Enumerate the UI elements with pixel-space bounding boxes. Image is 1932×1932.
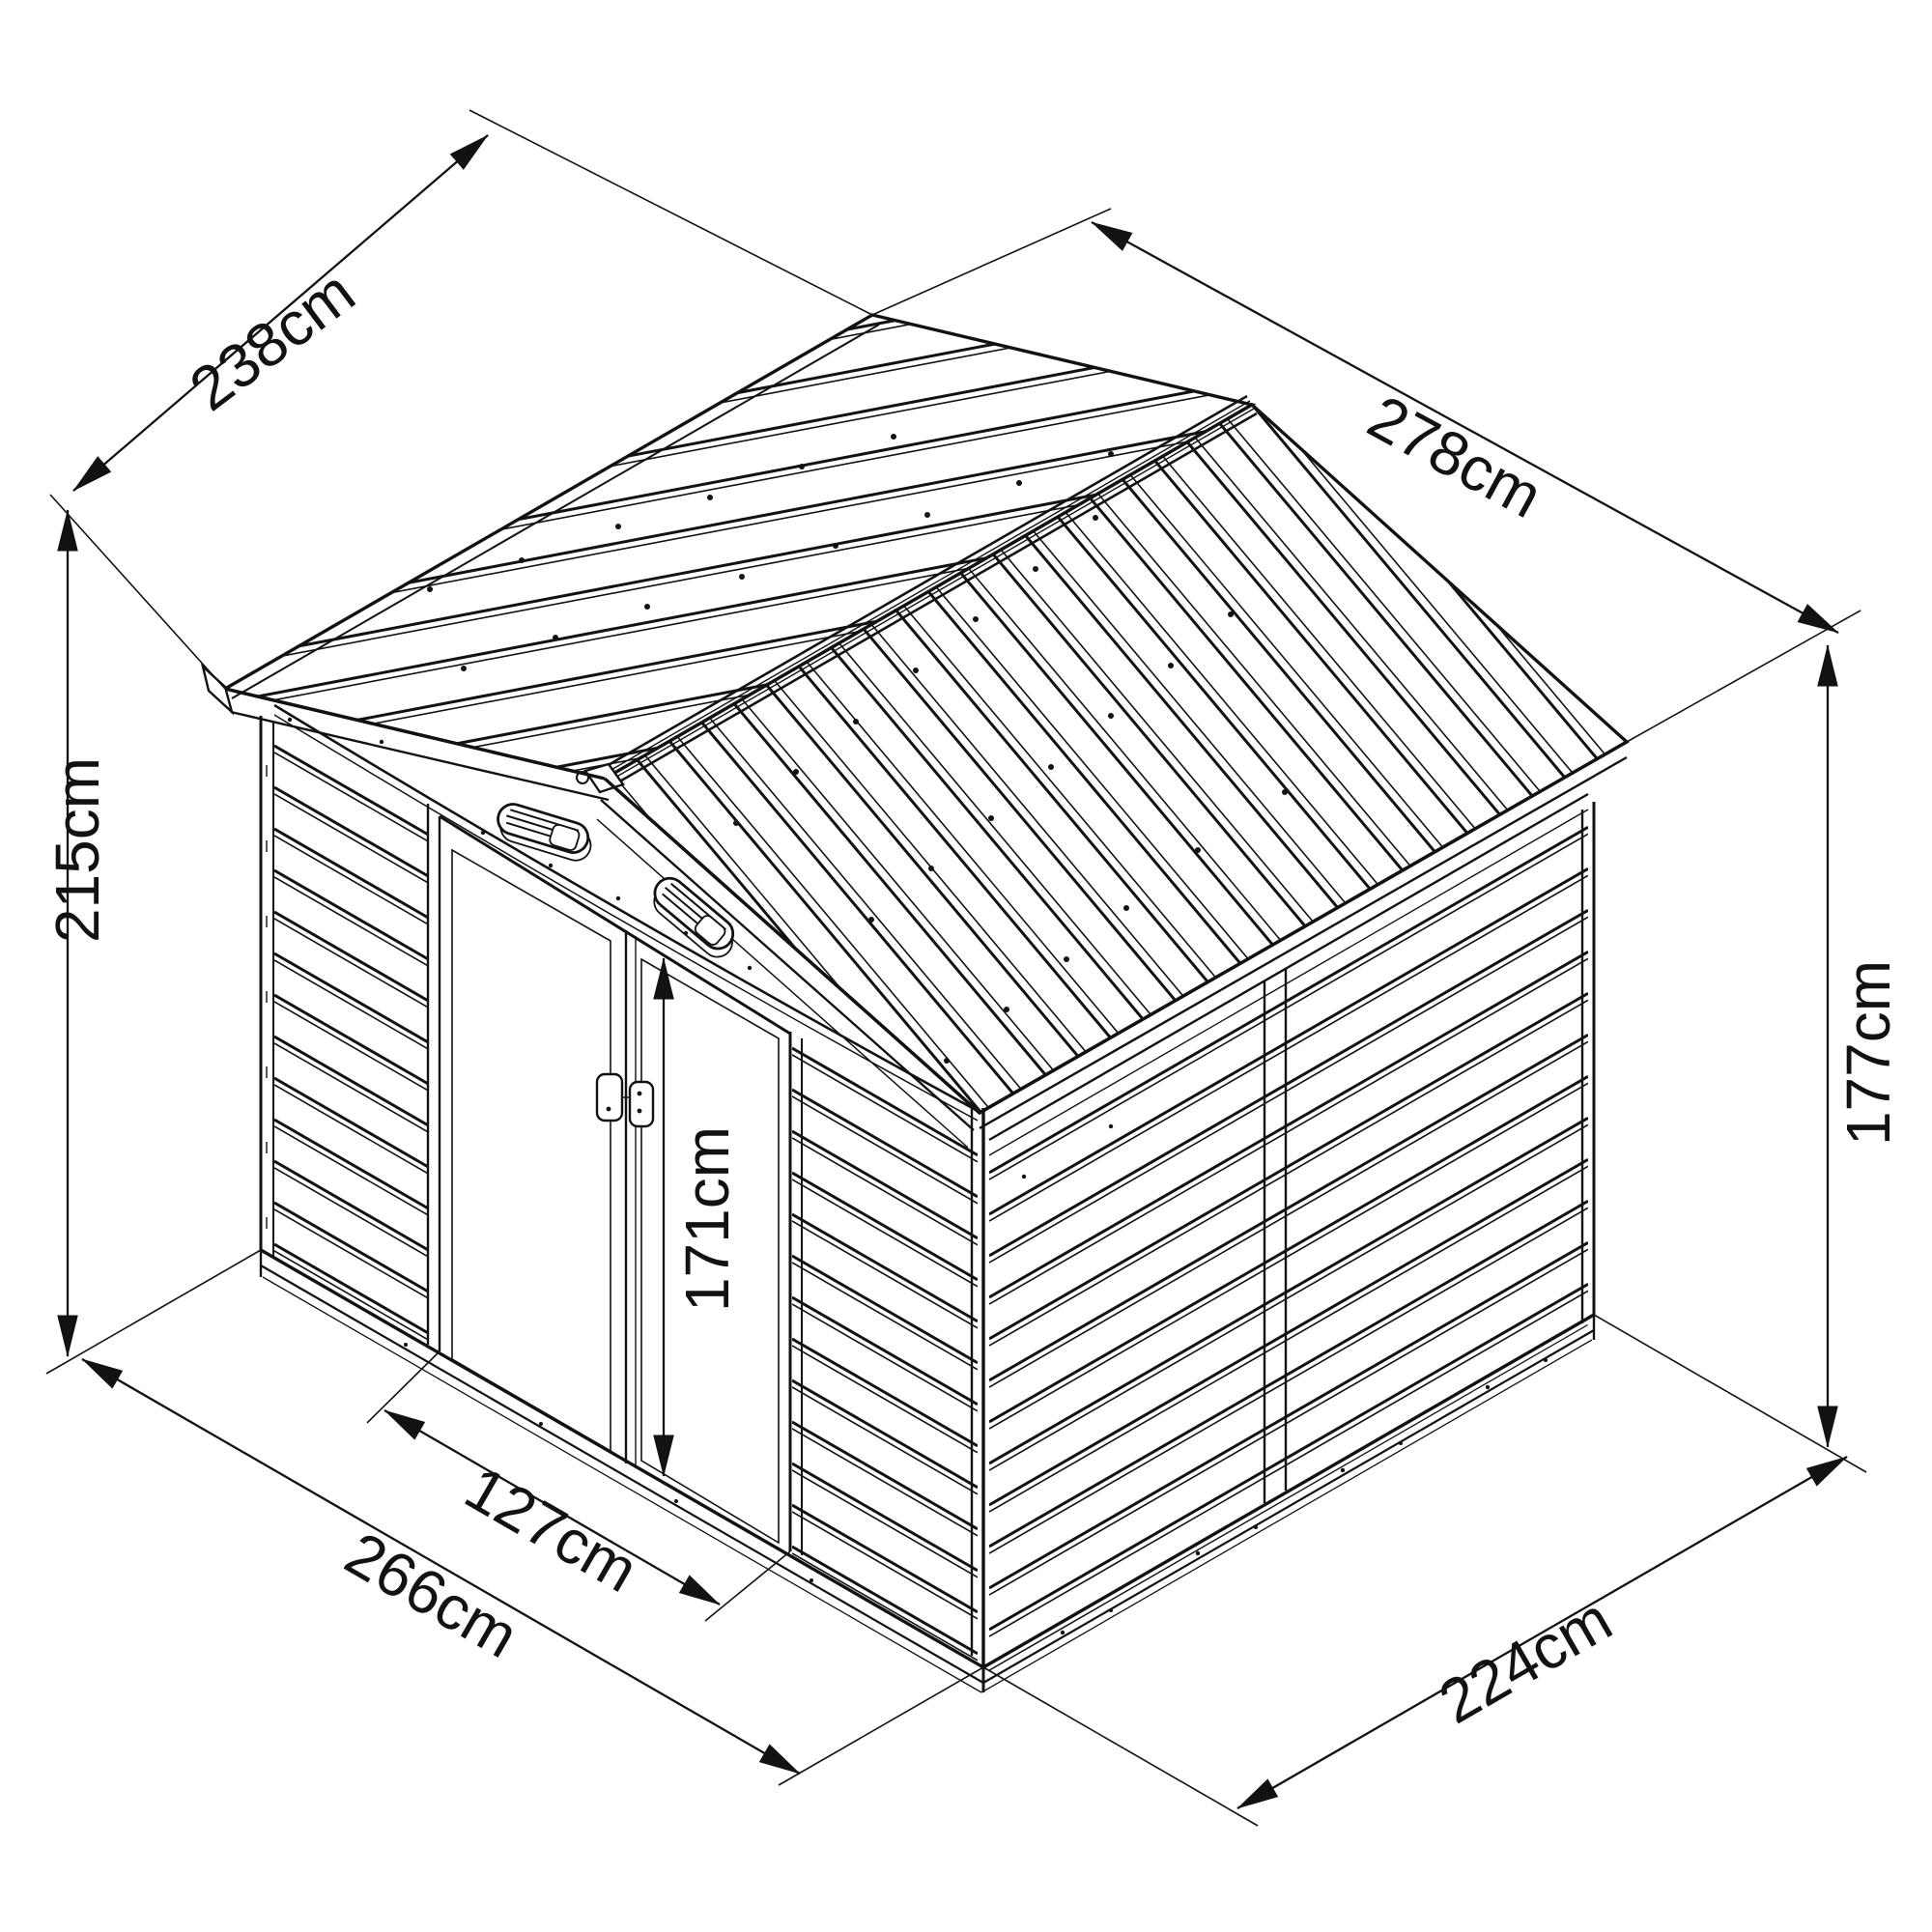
- dim-label-door-width: 127cm: [454, 1453, 649, 1605]
- left-door-panel-frame: [452, 850, 611, 1451]
- dim-label-wall-height: 177cm: [1833, 960, 1903, 1146]
- front-left-corner-trim: [261, 716, 273, 1256]
- dim-label-roof-width: 278cm: [1357, 382, 1553, 531]
- dim-label-base-width: 266cm: [334, 1519, 529, 1671]
- roof: [135, 187, 1664, 1261]
- shed-dimension-diagram: 238cm 278cm 215cm 177cm 171cm 127cm 266c…: [0, 0, 1932, 1932]
- dim-label-door-height: 171cm: [672, 1126, 742, 1312]
- side-screws: [1022, 1124, 1490, 1634]
- dim-label-total-height: 215cm: [43, 757, 112, 943]
- front-right-siding: [792, 1048, 978, 1661]
- dim-label-roof-depth: 238cm: [177, 257, 367, 424]
- front-left-siding: [274, 746, 428, 1340]
- diagram-canvas: 238cm 278cm 215cm 177cm 171cm 127cm 266c…: [0, 0, 1932, 1932]
- dim-label-base-depth: 224cm: [1428, 1584, 1623, 1737]
